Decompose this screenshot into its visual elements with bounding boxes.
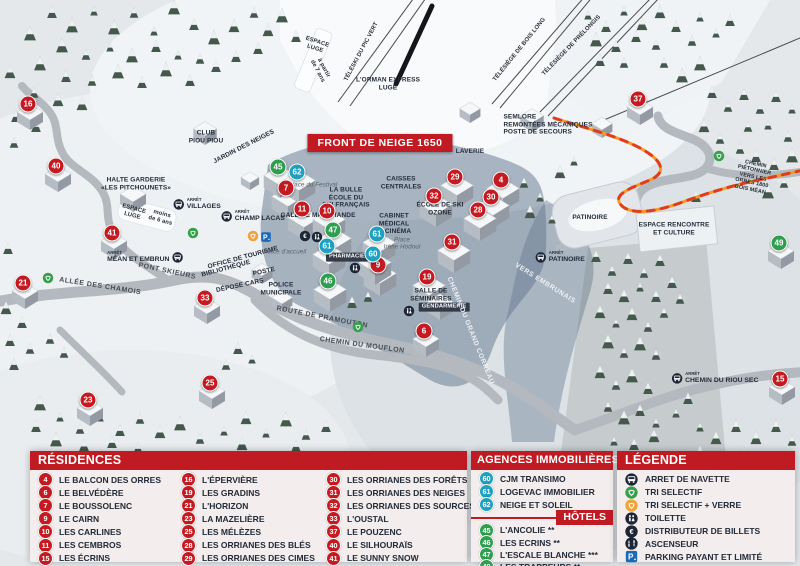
residences-list: 4LE BALCON DES ORRES6LE BELVÉDÈRE7LE BOU… [30,470,467,565]
residence-item-row: 41LE SUNNY SNOW [318,552,467,565]
residence-item-row: 11LES CEMBROS [30,538,173,551]
hotels-line [471,517,556,520]
residence-item-label: LES ORRIANES DES NEIGES [347,488,465,498]
residence-item-row: 29LES ORRIANES DES CIMES [173,552,318,565]
agences-list: 60CJM TRANSIMO61LOGEVAC IMMOBILIER62NEIG… [471,470,613,511]
residence-item-label: LES CARLINES [59,527,121,537]
residence-item-row: 31LES ORRIANES DES NEIGES [318,486,467,499]
legende-list: ARRET DE NAVETTETRI SELECTIFTRI SELECTIF… [617,470,795,563]
residence-item-label: L'OUSTAL [347,514,389,524]
residence-item-row: 15LES ÉCRINS [30,552,173,565]
legende-item-row: TRI SELECTIF [617,486,795,499]
residence-item-label: LES ORRIANES DES CIMES [202,553,315,563]
legende-icon-wrap [625,499,638,512]
legende-item-label: TOILETTE [645,513,686,523]
agence-item-row: 61LOGEVAC IMMOBILIER [471,485,613,498]
toilet-icon [625,512,638,525]
residence-item-label: LE SILHOURAÏS [347,540,413,550]
residence-item-label: LES ORRIANES DES BLÉS [202,540,311,550]
legende-item-label: DISTRIBUTEUR DE BILLETS [645,526,760,536]
agence-item-row: 60CJM TRANSIMO [471,472,613,485]
hotel-item-label: L'ANCOLIE ** [500,525,554,535]
residence-item-row: 19LES GRADINS [173,486,318,499]
residence-item-label: L'ÉPERVIÈRE [202,475,258,485]
agence-item-label: LOGEVAC IMMOBILIER [500,487,595,497]
legende-item-label: TRI SELECTIF [645,487,702,497]
legende-item-label: PARKING PAYANT ET LIMITÉ [645,552,762,562]
residence-item-row: 23LA MAZELIÈRE [173,512,318,525]
residence-item-label: LE SUNNY SNOW [347,553,419,563]
residence-item-number: 41 [326,551,341,566]
residence-item-row: 7LE BOUSSOLENC [30,499,173,512]
legende-item-row: TOILETTE [617,512,795,525]
legende-item-label: ASCENSEUR [645,539,698,549]
hotels-divider: HÔTELS [471,512,613,523]
residence-item-row: 30LES ORRIANES DES FORÊTS [318,473,467,486]
agence-item-label: NEIGE ET SOLEIL [500,500,573,510]
residences-panel: RÉSIDENCES 4LE BALCON DES ORRES6LE BELVÉ… [30,451,467,562]
legende-header: LÉGENDE [617,451,795,470]
resort-map-page: FRONT DE NEIGE 1650 ESPACE LUGEà partir … [0,0,800,566]
hotels-header: HÔTELS [556,510,613,525]
residence-item-label: LES GRADINS [202,488,260,498]
hotel-item-number: 49 [479,559,494,566]
residence-item-row: 10LES CARLINES [30,525,173,538]
hotel-item-row: 46LES ECRINS ** [471,536,613,548]
residence-item-row: 25LES MÉLÈZES [173,525,318,538]
svg-text:€: € [629,526,633,535]
recycle-yellow-icon [625,499,638,512]
residence-item-row: 21L'HORIZON [173,499,318,512]
legende-icon-wrap [625,537,638,550]
legende-item-row: TRI SELECTIF + VERRE [617,499,795,512]
residence-item-label: L'HORIZON [202,501,248,511]
agences-header: AGENCES IMMOBILIÈRES [471,451,613,470]
euro-icon: € [625,525,638,538]
hotels-list: 45L'ANCOLIE **46LES ECRINS **47L'ESCALE … [471,524,613,566]
legende-panel: LÉGENDE ARRET DE NAVETTETRI SELECTIFTRI … [617,451,795,562]
residence-item-row: 6LE BELVÉDÈRE [30,486,173,499]
residence-item-label: LES ÉCRINS [59,553,110,563]
residence-item-label: LE BELVÉDÈRE [59,488,124,498]
residence-item-row: 40LE SILHOURAÏS [318,538,467,551]
residences-column-2: 16L'ÉPERVIÈRE19LES GRADINS21L'HORIZON23L… [173,473,318,565]
residence-item-label: LE POUZENC [347,527,402,537]
residence-item-row: 28LES ORRIANES DES BLÉS [173,538,318,551]
residence-item-label: LA MAZELIÈRE [202,514,265,524]
residence-item-label: LE BOUSSOLENC [59,501,132,511]
hotel-item-label: L'ESCALE BLANCHE *** [500,550,598,560]
legende-icon-wrap: € [625,525,638,538]
residence-item-row: 4LE BALCON DES ORRES [30,473,173,486]
legende-icon-wrap [625,486,638,499]
hotel-item-row: 45L'ANCOLIE ** [471,524,613,536]
legende-item-label: ARRET DE NAVETTE [645,474,730,484]
elevator-icon [625,537,638,550]
residence-item-label: LES CEMBROS [59,540,121,550]
hotel-item-label: LES ECRINS ** [500,538,560,548]
residence-item-label: LE CAIRN [59,514,99,524]
residences-column-1: 4LE BALCON DES ORRES6LE BELVÉDÈRE7LE BOU… [30,473,173,565]
svg-text:P: P [628,553,634,562]
legende-item-row: €DISTRIBUTEUR DE BILLETS [617,525,795,538]
legende-item-row: PPARKING PAYANT ET LIMITÉ [617,550,795,563]
parking-icon: P [625,550,638,563]
residence-item-label: LES ORRIANES DES SOURCES [347,501,475,511]
legende-item-row: ASCENSEUR [617,537,795,550]
residence-item-number: 15 [38,551,53,566]
agence-item-number: 62 [479,497,494,512]
recycle-green-icon [625,486,638,499]
residence-item-number: 29 [181,551,196,566]
hotel-item-row: 49LES TRAPPEURS ** [471,561,613,566]
residence-item-label: LES ORRIANES DES FORÊTS [347,475,467,485]
residence-item-row: 32LES ORRIANES DES SOURCES [318,499,467,512]
legende-icon-wrap: P [625,550,638,563]
agences-panel: AGENCES IMMOBILIÈRES 60CJM TRANSIMO61LOG… [471,451,613,562]
residences-header: RÉSIDENCES [30,451,467,470]
hotel-item-label: LES TRAPPEURS ** [500,562,580,566]
legende-icon-wrap [625,473,638,486]
residences-column-3: 30LES ORRIANES DES FORÊTS31LES ORRIANES … [318,473,467,565]
residence-item-row: 33L'OUSTAL [318,512,467,525]
residence-item-row: 37LE POUZENC [318,525,467,538]
residence-item-row: 16L'ÉPERVIÈRE [173,473,318,486]
residence-item-label: LES MÉLÈZES [202,527,261,537]
residence-item-label: LE BALCON DES ORRES [59,475,161,485]
legende-icon-wrap [625,512,638,525]
legende-item-label: TRI SELECTIF + VERRE [645,500,741,510]
agence-item-label: CJM TRANSIMO [500,474,566,484]
legende-item-row: ARRET DE NAVETTE [617,473,795,486]
hotel-item-row: 47L'ESCALE BLANCHE *** [471,549,613,561]
bus-icon [625,473,638,486]
residence-item-row: 9LE CAIRN [30,512,173,525]
